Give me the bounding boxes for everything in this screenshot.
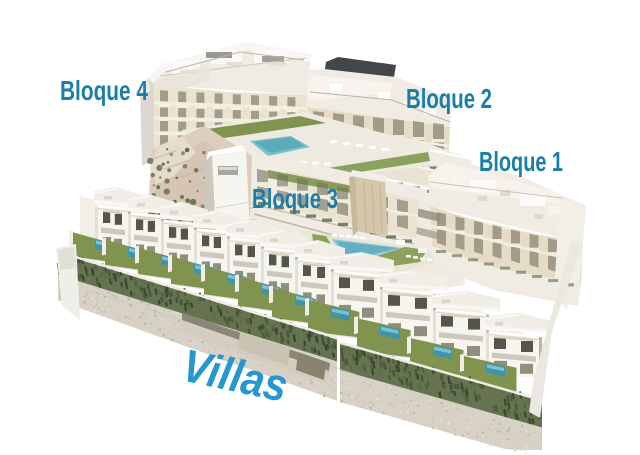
svg-text:Bloque 1: Bloque 1 <box>479 146 563 177</box>
svg-text:Bloque 4: Bloque 4 <box>60 75 148 106</box>
svg-text:Bloque 3: Bloque 3 <box>252 183 338 214</box>
svg-text:Bloque 2: Bloque 2 <box>406 83 492 114</box>
